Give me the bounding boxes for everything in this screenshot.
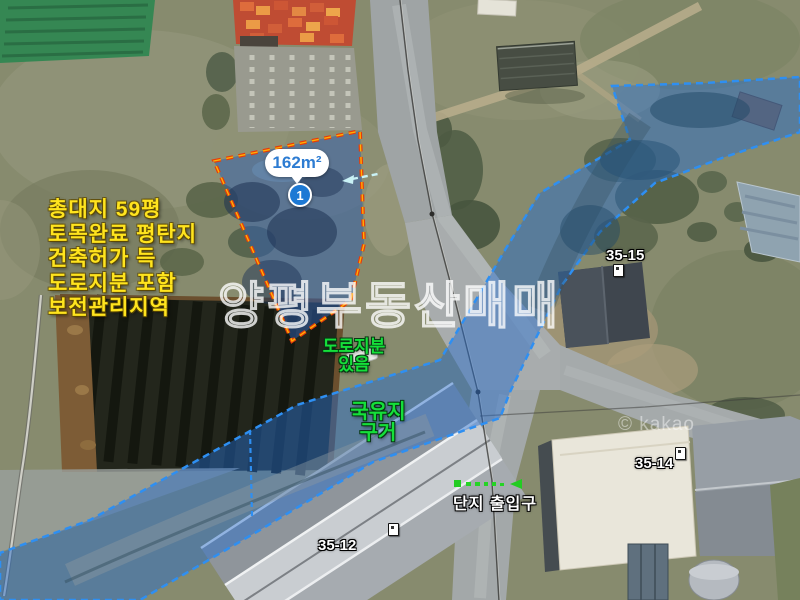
map-copyright: © kakao: [618, 414, 695, 436]
plot-label-35-15: 35-15: [606, 247, 644, 264]
info-line-permit: 건축허가 득: [48, 247, 197, 272]
road-share-line1: 도로지분: [314, 338, 394, 356]
area-label-text: 162m²: [272, 153, 321, 173]
green-roof-building: [0, 0, 155, 63]
plot-label-35-14: 35-14: [635, 455, 673, 472]
building-icon[interactable]: [613, 264, 624, 277]
info-line-groundwork: 토목완료 평탄지: [48, 223, 197, 248]
info-line-total-area: 총대지 59평: [48, 198, 197, 223]
satellite-map-screenshot[interactable]: 총대지 59평 토목완료 평탄지 건축허가 득 도로지분 포함 보전관리지역 양…: [0, 0, 800, 600]
orange-roof-buildings: [233, 0, 362, 132]
info-line-zoning: 보전관리지역: [48, 296, 197, 321]
entrance-arrow-icon: [452, 478, 532, 490]
entrance-annotation: 단지 출입구: [453, 490, 537, 514]
info-line-road-share: 도로지분 포함: [48, 272, 197, 297]
area-label-bubble: 162m²: [265, 149, 329, 177]
waterway-line2: 구거: [337, 423, 419, 444]
parcel-number-marker[interactable]: 1: [288, 183, 312, 207]
waterway-line1: 국유지: [337, 402, 419, 423]
plot-label-35-12: 35-12: [318, 537, 356, 554]
waterway-annotation: 국유지 구거: [337, 402, 419, 444]
agency-watermark: 양평부동산매매: [218, 266, 561, 338]
road-share-annotation: 도로지분 있음: [314, 338, 394, 374]
building-icon[interactable]: [675, 447, 686, 460]
listing-info-block: 총대지 59평 토목완료 평탄지 건축허가 득 도로지분 포함 보전관리지역: [48, 198, 197, 321]
building-icon[interactable]: [388, 523, 399, 536]
road-share-line2: 있음: [314, 356, 394, 374]
